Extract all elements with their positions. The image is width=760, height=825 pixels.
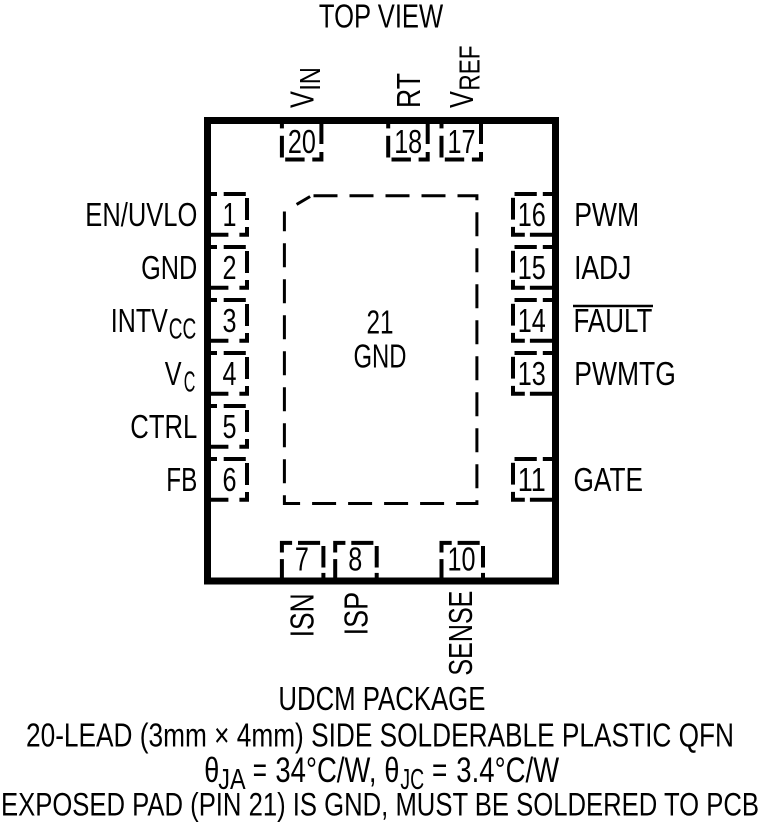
svg-text:8: 8: [348, 541, 362, 578]
svg-text:EN/UVLO: EN/UVLO: [85, 196, 197, 233]
svg-text:GATE: GATE: [574, 461, 644, 498]
svg-text:TOP VIEW: TOP VIEW: [319, 0, 444, 35]
svg-text:IADJ: IADJ: [574, 249, 631, 286]
svg-text:21: 21: [367, 303, 394, 340]
svg-text:PWM: PWM: [574, 196, 639, 233]
svg-text:FB: FB: [166, 461, 197, 498]
svg-text:14: 14: [518, 302, 546, 339]
svg-text:18: 18: [394, 123, 422, 160]
svg-text:1: 1: [223, 196, 237, 233]
svg-text:7: 7: [295, 541, 309, 578]
svg-text:3.4°C/W: 3.4°C/W: [456, 751, 559, 790]
svg-text:GND: GND: [141, 249, 197, 286]
svg-text:17: 17: [448, 123, 476, 160]
svg-text:V: V: [283, 91, 320, 108]
svg-text:10: 10: [448, 541, 476, 578]
svg-text:34°C/W,: 34°C/W,: [275, 751, 376, 790]
svg-text:13: 13: [518, 355, 546, 392]
svg-text:PWMTG: PWMTG: [574, 355, 676, 392]
svg-text:3: 3: [223, 302, 237, 339]
svg-text:5: 5: [223, 408, 237, 445]
svg-text:EXPOSED PAD (PIN 21) IS GND, M: EXPOSED PAD (PIN 21) IS GND, MUST BE SOL…: [1, 787, 759, 823]
svg-text:ISN: ISN: [283, 593, 320, 637]
svg-text:20: 20: [288, 123, 316, 160]
svg-text:4: 4: [223, 355, 237, 392]
svg-text:=: =: [253, 751, 267, 790]
svg-text:GND: GND: [354, 338, 407, 375]
svg-text:FAULT: FAULT: [574, 302, 653, 339]
svg-text:16: 16: [518, 196, 546, 233]
svg-text:C: C: [184, 367, 196, 399]
svg-text:20-LEAD (3mm × 4mm) SIDE SOLDE: 20-LEAD (3mm × 4mm) SIDE SOLDERABLE PLAS…: [26, 716, 734, 753]
svg-text:CTRL: CTRL: [130, 408, 197, 445]
svg-text:RT: RT: [390, 73, 427, 108]
svg-text:REF: REF: [455, 45, 487, 90]
svg-text:V: V: [443, 91, 480, 108]
svg-text:V: V: [165, 355, 182, 392]
svg-text:INTV: INTV: [111, 302, 168, 339]
svg-text:UDCM PACKAGE: UDCM PACKAGE: [278, 680, 485, 717]
svg-text:θ: θ: [204, 751, 219, 790]
svg-text:11: 11: [518, 461, 546, 498]
svg-text:θ: θ: [384, 751, 399, 790]
svg-text:ISP: ISP: [338, 592, 375, 636]
svg-text:SENSE: SENSE: [442, 591, 479, 676]
svg-text:2: 2: [223, 249, 237, 286]
svg-text:CC: CC: [169, 313, 197, 345]
svg-text:15: 15: [518, 249, 546, 286]
svg-text:=: =: [432, 751, 447, 790]
svg-text:IN: IN: [295, 67, 327, 91]
svg-text:6: 6: [223, 461, 237, 498]
